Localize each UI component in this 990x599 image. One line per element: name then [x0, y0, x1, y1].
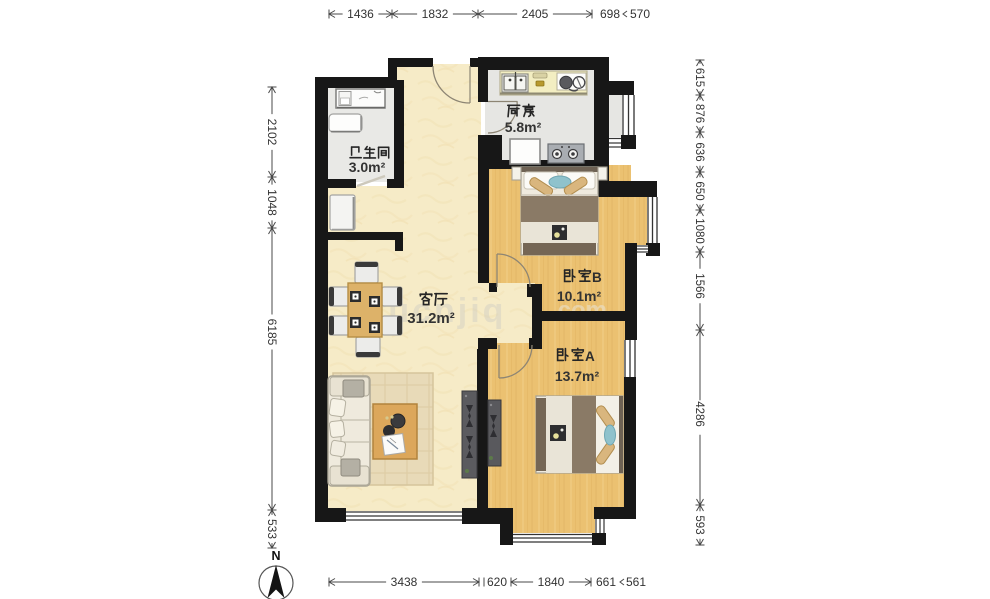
- svg-text:620: 620: [487, 575, 507, 589]
- svg-text:650: 650: [693, 181, 705, 200]
- svg-text:615: 615: [693, 68, 705, 87]
- svg-text:876: 876: [693, 104, 705, 123]
- svg-text:661: 661: [596, 575, 616, 589]
- svg-text:1436: 1436: [347, 7, 374, 21]
- svg-text:1832: 1832: [422, 7, 449, 21]
- svg-text:533: 533: [265, 519, 279, 539]
- svg-text:6185: 6185: [265, 319, 279, 346]
- svg-text:31.2m²: 31.2m²: [407, 310, 455, 327]
- svg-text:3438: 3438: [391, 575, 418, 589]
- svg-text:N: N: [271, 549, 280, 563]
- svg-text:1566: 1566: [693, 273, 705, 299]
- svg-text:5.8m²: 5.8m²: [505, 119, 542, 135]
- svg-text:B: B: [592, 270, 602, 285]
- svg-text:593: 593: [693, 515, 705, 534]
- svg-text:2102: 2102: [265, 119, 279, 146]
- svg-text:1840: 1840: [538, 575, 565, 589]
- svg-text:4286: 4286: [693, 401, 705, 427]
- svg-text:698: 698: [600, 7, 620, 21]
- svg-text:13.7m²: 13.7m²: [555, 368, 600, 384]
- svg-text:1048: 1048: [265, 189, 279, 216]
- svg-text:561: 561: [626, 575, 646, 589]
- svg-text:3.0m²: 3.0m²: [349, 159, 386, 175]
- svg-text:636: 636: [693, 142, 705, 161]
- svg-text:570: 570: [630, 7, 650, 21]
- svg-text:10.1m²: 10.1m²: [557, 288, 602, 304]
- svg-text:2405: 2405: [522, 7, 549, 21]
- svg-text:1080: 1080: [693, 218, 705, 244]
- svg-text:A: A: [585, 349, 595, 364]
